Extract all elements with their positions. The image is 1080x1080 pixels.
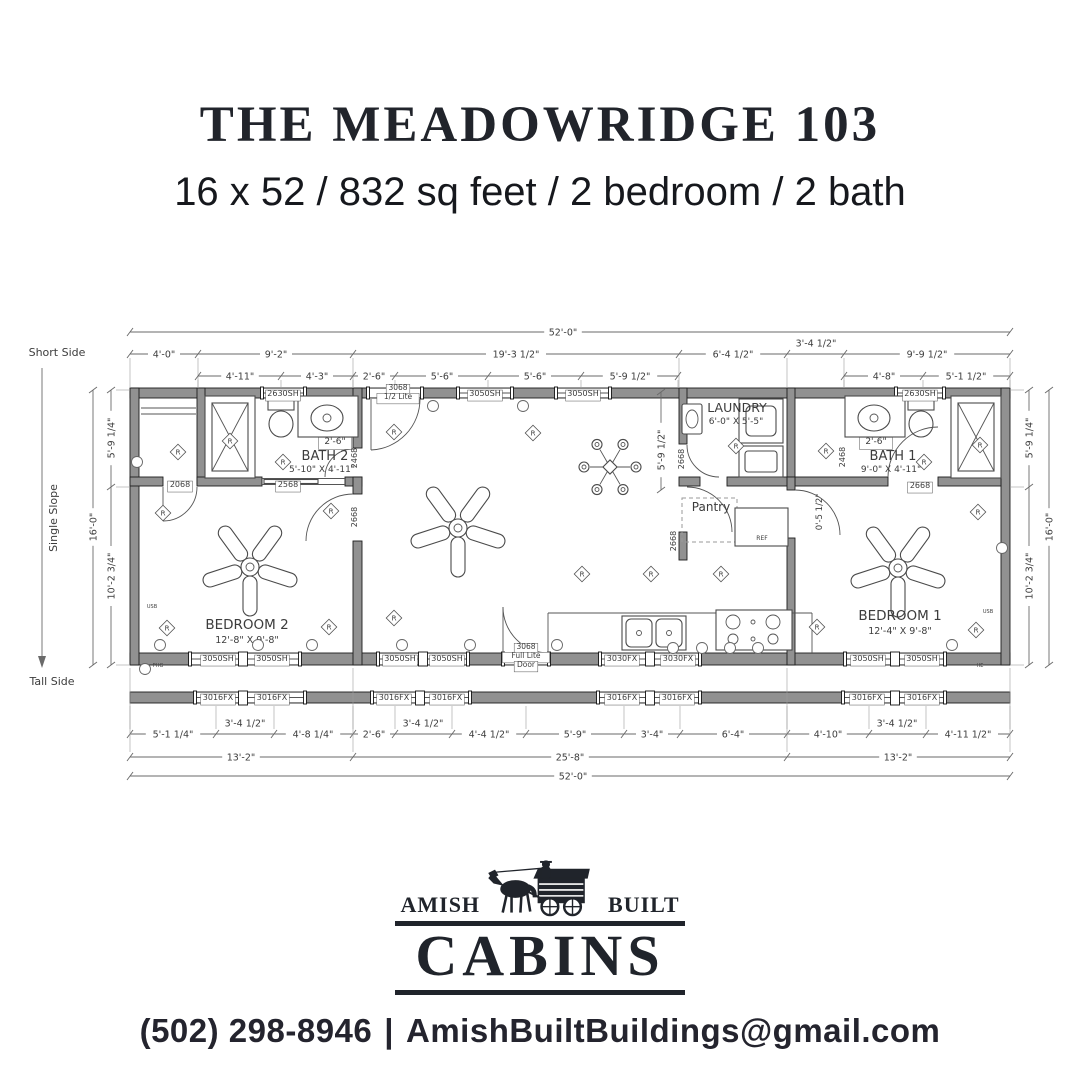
dim-label: 10'-2 3/4": [106, 553, 117, 600]
dim-label: 4'-11 1/2": [945, 729, 992, 740]
plan-label: 9'-0" X 4'-11": [861, 465, 921, 475]
logo-amish: AMISH: [400, 894, 480, 918]
light-symbol: [753, 643, 764, 654]
plan-label: 3050SH: [852, 654, 883, 663]
dim-label: 5'-9 1/2": [610, 371, 651, 382]
dim-label: 2'-6": [363, 729, 386, 740]
light-symbol: [947, 640, 958, 651]
dim-label: 5'-9 1/2": [656, 430, 667, 471]
slope-arrow: [38, 368, 46, 668]
plan-label: 2068: [170, 480, 190, 489]
plan-label: 2668: [910, 481, 930, 490]
plan-label: Single Slope: [47, 484, 60, 552]
plan-label: Full Lite: [511, 651, 540, 660]
dim-label: 4'-4 1/2": [469, 729, 510, 740]
dim-label: 4'-0": [153, 349, 176, 360]
horse-buggy-icon: [485, 856, 603, 918]
dim-label: 16'-0": [88, 513, 99, 542]
dim-label: 5'-9 1/4": [106, 418, 117, 459]
plan-label: HE: [977, 663, 984, 669]
dim-label: 5'-9 1/4": [1024, 418, 1035, 459]
plan-label: 2'-6": [324, 437, 345, 447]
light-symbol: [307, 640, 318, 651]
light-symbol: [253, 640, 264, 651]
light-symbol: [725, 643, 736, 654]
dim-label: 3'-4": [641, 729, 664, 740]
plan-label: 3016FX: [907, 693, 938, 702]
plan-label: 3016FX: [257, 693, 288, 702]
plan-label: 3050SH: [202, 654, 233, 663]
plan-label: 3050SH: [469, 389, 500, 398]
outlet-symbol: R: [392, 429, 397, 437]
light-symbol: [518, 401, 529, 412]
contact-line: (502) 298-8946|AmishBuiltBuildings@gmail…: [0, 1012, 1080, 1050]
outlet-symbol: R: [392, 615, 397, 623]
dim-label: 2'-6": [363, 371, 386, 382]
dim-label: 3'-4 1/2": [403, 718, 444, 729]
outlet-symbol: R: [719, 571, 724, 579]
outlet-symbol: R: [976, 509, 981, 517]
outlet-symbol: R: [531, 430, 536, 438]
brand-logo: AMISH: [395, 856, 685, 995]
outlet-symbol: R: [161, 510, 166, 518]
outlet-symbol: R: [176, 449, 181, 457]
dim-label: 3'-4 1/2": [877, 718, 918, 729]
light-symbol: [668, 643, 679, 654]
window-mullion: [646, 652, 655, 666]
dim-label: 5'-6": [431, 371, 454, 382]
plan-label: 3050SH: [906, 654, 937, 663]
dim-label: 3'-4 1/2": [796, 338, 837, 349]
plan-label: BEDROOM 1: [858, 608, 941, 624]
outlet-symbol: R: [922, 459, 927, 467]
plan-label: 2568: [278, 480, 298, 489]
plan-label: REF: [756, 535, 768, 542]
dim-label: 4'-8": [873, 371, 896, 382]
plan-label: 3016FX: [662, 693, 693, 702]
logo-divider-bottom: [395, 990, 685, 995]
outlet-symbol: R: [327, 624, 332, 632]
dim-label: 4'-10": [814, 729, 843, 740]
plan-label: BATH 2: [302, 449, 349, 464]
plan-label: 3050SH: [256, 654, 287, 663]
outlet-symbol: R: [649, 571, 654, 579]
window-mullion: [419, 652, 428, 666]
plan-label: 3016FX: [432, 693, 463, 702]
plan-label: 5'-10" X 4'-11": [289, 465, 355, 475]
dim-label: 16'-0": [1044, 513, 1055, 542]
plan-label: Tall Side: [28, 675, 74, 688]
plan-label: Pantry: [692, 500, 730, 514]
outlet-symbol: R: [734, 443, 739, 451]
outlet-symbol: R: [974, 627, 979, 635]
logo-cabins: CABINS: [395, 926, 685, 987]
dim-label: 5'-6": [524, 371, 547, 382]
dim-label: 4'-3": [306, 371, 329, 382]
plan-label: 0'-5 1/2": [815, 494, 825, 531]
plan-label: 2'-6": [865, 437, 886, 447]
dim-label: 9'-2": [265, 349, 288, 360]
dim-label: 6'-4 1/2": [713, 349, 754, 360]
plan-label: 3016FX: [379, 693, 410, 702]
outlet-symbol: R: [978, 442, 983, 450]
plan-label: 2630SH: [267, 389, 298, 398]
outlet-symbol: R: [281, 459, 286, 467]
plan-label: 2668: [350, 507, 359, 527]
plan-label: 3016FX: [203, 693, 234, 702]
dim-label: 13'-2": [227, 752, 256, 763]
plan-label: 3050SH: [567, 389, 598, 398]
dim-label: 52'-0": [549, 327, 578, 338]
logo-built: BUILT: [608, 894, 679, 918]
ceiling-fan-icons: [201, 484, 947, 617]
plan-label: 3016FX: [607, 693, 638, 702]
window-mullion: [891, 691, 900, 705]
plan-label: 3016FX: [852, 693, 883, 702]
light-symbol: [997, 543, 1008, 554]
plan-label: 1/2 Lite: [384, 392, 413, 401]
light-symbol: [132, 457, 143, 468]
light-symbol: [465, 640, 476, 651]
outlet-symbol: R: [228, 438, 233, 446]
dim-label: 6'-4": [722, 729, 745, 740]
plan-label: 2630SH: [904, 389, 935, 398]
dim-label: 4'-11": [226, 371, 255, 382]
light-symbol: [397, 640, 408, 651]
ceiling-fan-icon: [201, 523, 299, 616]
contact-separator: |: [378, 1012, 400, 1049]
dim-label: 19'-3 1/2": [493, 349, 540, 360]
ceiling-fan-icon: [849, 524, 947, 617]
contact-email: AmishBuiltBuildings@gmail.com: [400, 1012, 946, 1049]
light-symbol: [697, 643, 708, 654]
plan-label: Door: [517, 660, 536, 669]
plan-label: PHG: [153, 663, 164, 669]
outlet-symbol: R: [824, 448, 829, 456]
dim-label: 5'-1 1/4": [153, 729, 194, 740]
plan-label: 3068: [516, 642, 535, 651]
light-symbol: [140, 664, 151, 675]
dim-label: 25'-8": [556, 752, 585, 763]
outlet-symbol: R: [815, 624, 820, 632]
window-mullion: [416, 691, 425, 705]
light-symbol: [155, 640, 166, 651]
plan-label: 3050SH: [431, 654, 462, 663]
plan-label: 2668: [677, 449, 686, 469]
dim-label: 52'-0": [559, 771, 588, 782]
plan-label: 3030FX: [663, 654, 694, 663]
dim-label: 4'-8 1/4": [293, 729, 334, 740]
plan-label: BEDROOM 2: [205, 617, 288, 633]
plan-label: 12'-8" X 9'-8": [215, 635, 279, 646]
window-mullion: [891, 652, 900, 666]
flyer-page: THE MEADOWRIDGE 103 16 x 52 / 832 sq fee…: [0, 0, 1080, 1080]
light-symbol: [552, 640, 563, 651]
plan-label: BATH 1: [870, 449, 917, 464]
outlet-symbol: R: [165, 625, 170, 633]
chandelier-icon: [579, 439, 641, 494]
plan-label: USB: [983, 609, 994, 615]
window-mullion: [646, 691, 655, 705]
plan-label: 6'-0" X 5'-5": [709, 417, 764, 427]
plan-label: USB: [147, 604, 158, 610]
outlet-symbol: R: [329, 508, 334, 516]
dim-label: 5'-1 1/2": [946, 371, 987, 382]
plan-label: 2468: [838, 447, 847, 467]
plan-label: Short Side: [29, 346, 86, 359]
dim-label: 5'-9": [564, 729, 587, 740]
dim-label: 13'-2": [884, 752, 913, 763]
plan-label: 3030FX: [607, 654, 638, 663]
plan-label: 2668: [669, 531, 678, 551]
ceiling-fan-icon: [409, 484, 507, 577]
dim-label: 3'-4 1/2": [225, 718, 266, 729]
dim-label: 10'-2 3/4": [1024, 553, 1035, 600]
plan-label: 12'-4" X 9'-8": [868, 626, 932, 637]
outlet-symbol: R: [580, 571, 585, 579]
dim-label: 9'-9 1/2": [907, 349, 948, 360]
window-mullion: [239, 691, 248, 705]
plan-label: LAUNDRY: [707, 400, 767, 415]
contact-phone: (502) 298-8946: [134, 1012, 379, 1049]
window-mullion: [239, 652, 248, 666]
light-symbol: [428, 401, 439, 412]
plan-label: 3068: [388, 383, 407, 392]
plan-label: 3050SH: [384, 654, 415, 663]
